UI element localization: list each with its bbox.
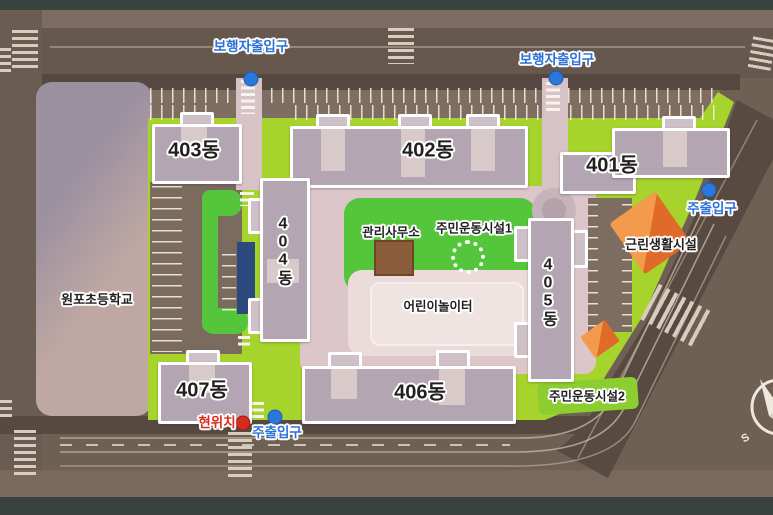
pedestrian-entrance-label-2: 보행자출입구 (520, 53, 595, 67)
management-office-label: 관리사무소 (362, 226, 420, 239)
bottom-sidewalk (0, 470, 773, 497)
sports-facility-circle-icon (451, 240, 485, 274)
playground-inner (370, 282, 524, 346)
building-406-label: 406동 (394, 383, 446, 404)
parking-ticks-west-col1 (152, 186, 182, 352)
building-401-label: 401동 (586, 156, 638, 177)
building-402-roof-patch1 (321, 129, 345, 171)
building-405-label: 405동 (539, 257, 556, 328)
school-label: 원포초등학교 (61, 293, 133, 307)
building-402-roof-patch3 (471, 129, 495, 171)
path-dashes-north2 (546, 82, 560, 114)
pedestrian-entrance-dot-1 (244, 72, 259, 87)
neighborhood-facility-label: 근린생활시설 (625, 238, 697, 252)
pedestrian-entrance-label-1: 보행자출입구 (214, 40, 289, 54)
current-location-dot (236, 416, 251, 431)
crosswalk-top-left-small (0, 48, 11, 72)
crosswalk-bottom-left (14, 430, 36, 478)
sports-facility-1-label: 주민운동시설1 (436, 222, 512, 235)
crosswalk-top-center (388, 28, 414, 64)
current-location-label: 현위치 (198, 416, 235, 430)
main-entrance-dot-south (268, 410, 283, 425)
building-407-label: 407동 (176, 381, 228, 402)
building-403-label: 403동 (168, 141, 220, 162)
crosswalk-bottom-center (228, 432, 252, 478)
building-401-roof-patch (663, 131, 687, 167)
path-dashes-south (250, 402, 264, 418)
main-entrance-label-south: 주출입구 (252, 426, 302, 440)
building-404-label: 404동 (274, 216, 291, 287)
east-parking-ticks-left (588, 204, 598, 328)
path-dashes-inner (238, 336, 250, 348)
sports-facility-2-label: 주민운동시설2 (549, 390, 625, 403)
building-402-label: 402동 (402, 141, 454, 162)
top-road (0, 28, 773, 78)
building-406-roof-patch1 (331, 369, 357, 399)
management-office-building (374, 240, 414, 276)
main-entrance-dot-east (702, 183, 717, 198)
parking-ticks-west-col2 (222, 254, 236, 312)
main-entrance-label-east: 주출입구 (687, 202, 737, 216)
crosswalk-bottom-left-small (0, 400, 12, 418)
top-sidewalk (0, 10, 773, 28)
parking-ticks-top-row2b (295, 105, 720, 120)
pedestrian-entrance-dot-2 (549, 71, 564, 86)
crosswalk-top-right (747, 36, 773, 73)
crosswalk-top-left (12, 30, 38, 68)
children-playground-label: 어린이놀이터 (403, 300, 472, 313)
school-block (36, 82, 152, 416)
site-map-sign: 원포초등학교 403동 402동 401동 404동 405동 406동 407… (0, 0, 773, 515)
